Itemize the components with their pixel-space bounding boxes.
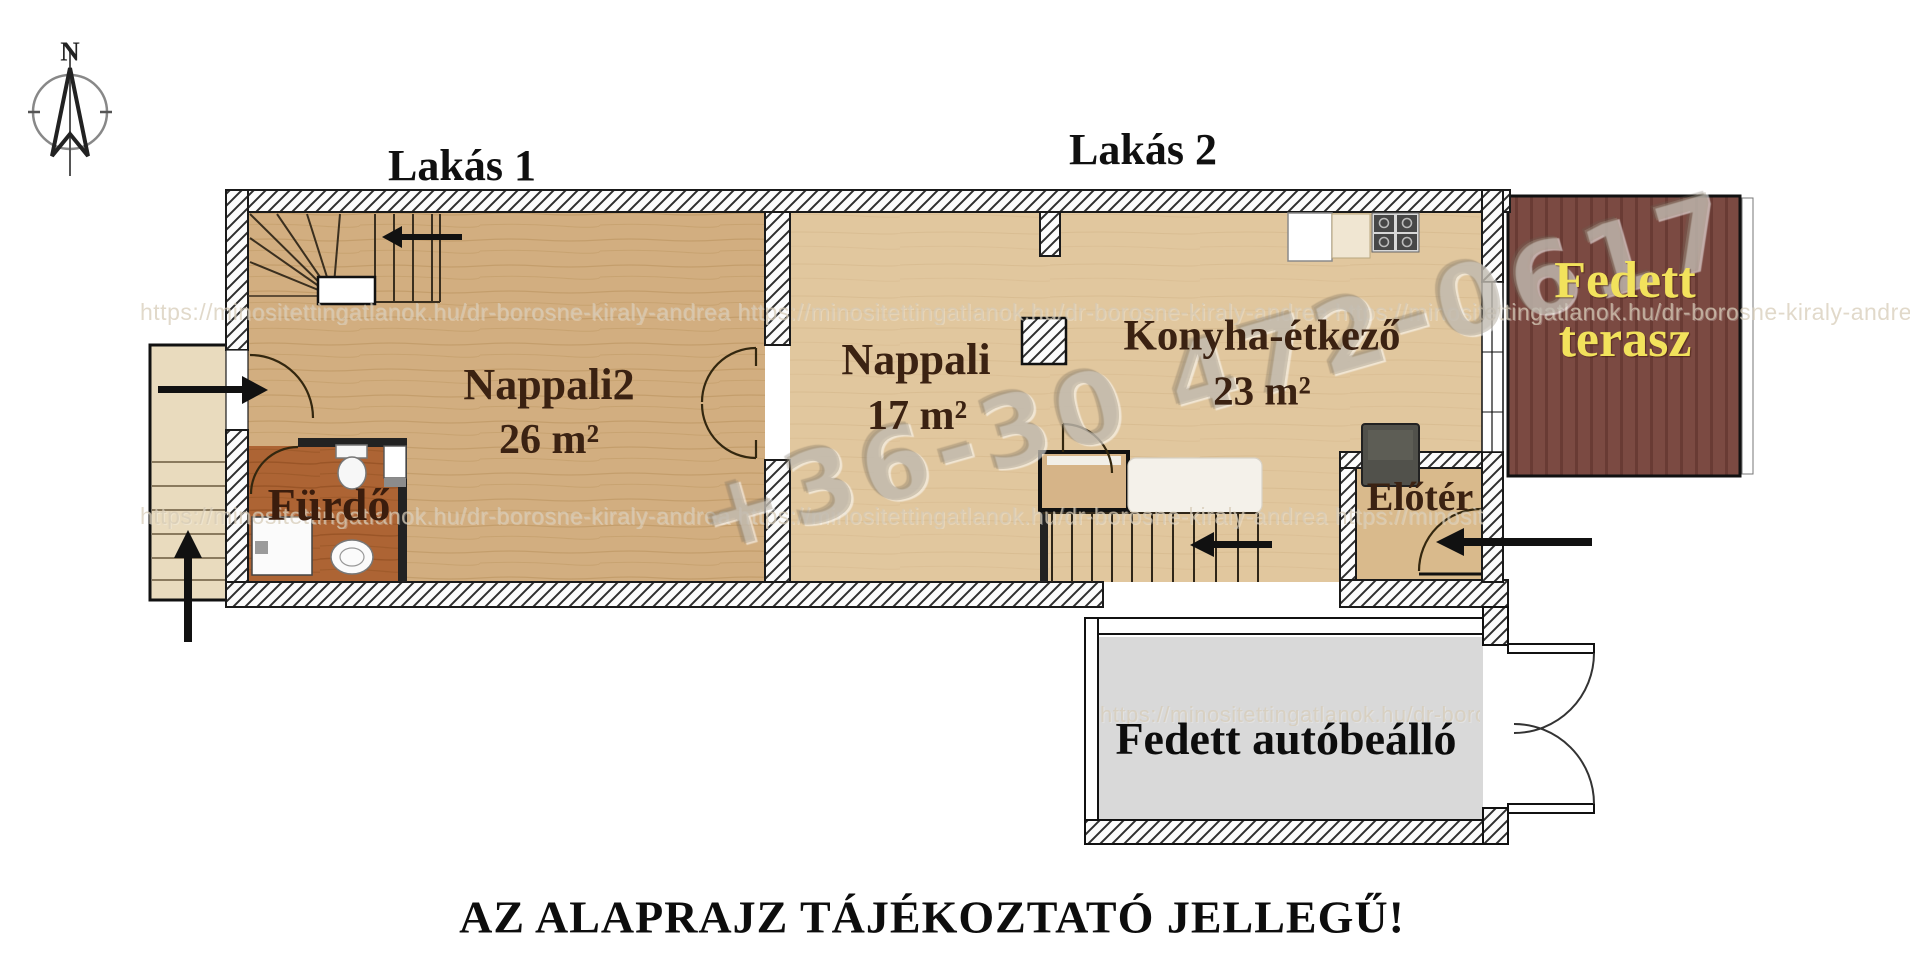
terrace-edge xyxy=(1742,198,1753,474)
carport-wall-bottom xyxy=(1085,820,1508,844)
wall-divider-upper xyxy=(765,212,790,345)
arrow-entrance-eloter xyxy=(1436,528,1592,556)
room-label-konyha: Konyha-étkező xyxy=(1123,315,1400,358)
terrace-label-line2: terasz xyxy=(1559,314,1692,366)
gate-leaf-bottom xyxy=(1508,804,1594,813)
shower-drain xyxy=(255,541,268,554)
kitchen-counter xyxy=(1332,214,1370,258)
gate-leaf-top xyxy=(1508,644,1594,653)
room-label-eloter: Előtér xyxy=(1367,477,1474,517)
gate-arc-top xyxy=(1514,653,1594,733)
kitchen-sink xyxy=(1288,213,1332,261)
terrace-label-line1: Fedett xyxy=(1554,255,1695,307)
disclaimer-text: AZ ALAPRAJZ TÁJÉKOZTATÓ JELLEGŰ! xyxy=(459,891,1405,944)
apartment2-title: Lakás 2 xyxy=(1069,128,1217,172)
washbasin xyxy=(331,540,373,574)
carport-label: Fedett autóbeálló xyxy=(1115,716,1456,762)
floor-plan-page: https://minositettingatlanok.hu/dr-boros… xyxy=(0,0,1920,970)
compass-north-label: N xyxy=(60,37,80,68)
carport-wall-right-upper xyxy=(1483,607,1508,645)
room-label-furdo: Fürdő xyxy=(268,482,391,528)
room-area-nappali: 17 m² xyxy=(867,395,967,437)
fireplace-stove-door xyxy=(1368,430,1413,460)
carport-wall-right-lower xyxy=(1483,808,1508,844)
room-label-nappali2: Nappali2 xyxy=(463,363,634,407)
room-area-konyha: 23 m² xyxy=(1213,371,1311,412)
toilet-tank xyxy=(336,445,367,458)
room-label-nappali: Nappali xyxy=(841,338,990,382)
wall-left-upper xyxy=(226,190,248,350)
wall-bottom-main xyxy=(226,582,1103,607)
wall-top xyxy=(226,190,1510,212)
carport-wall-top xyxy=(1085,618,1508,634)
apartment1-title: Lakás 1 xyxy=(388,144,536,188)
gate-arc-bottom xyxy=(1514,724,1594,804)
room-area-nappali2: 26 m² xyxy=(499,419,599,461)
wall-right-lower xyxy=(1482,452,1503,582)
carport-wall-left xyxy=(1085,618,1098,820)
wall-bottom-eloter xyxy=(1340,580,1508,607)
wall-stub-kitchen xyxy=(1040,212,1060,256)
wall-cabinet xyxy=(384,446,406,478)
